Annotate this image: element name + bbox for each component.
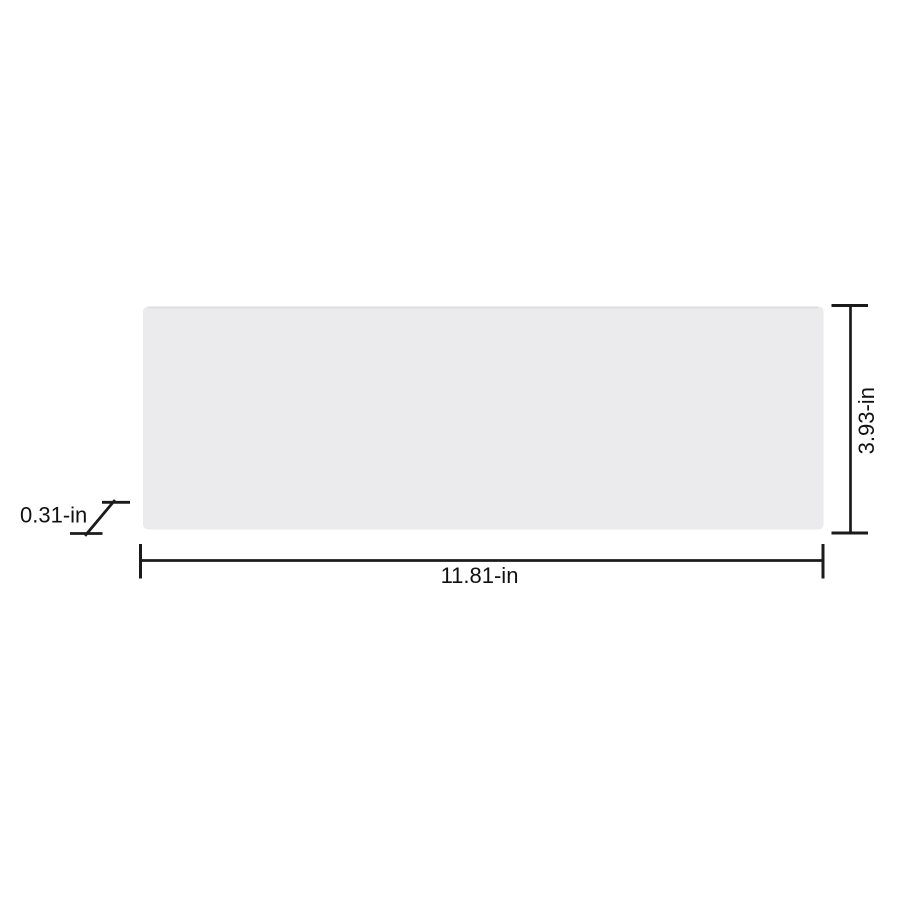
svg-text:3.93-in: 3.93-in xyxy=(854,387,879,454)
svg-text:11.81-in: 11.81-in xyxy=(441,563,519,588)
svg-text:0.31-in: 0.31-in xyxy=(20,502,87,527)
